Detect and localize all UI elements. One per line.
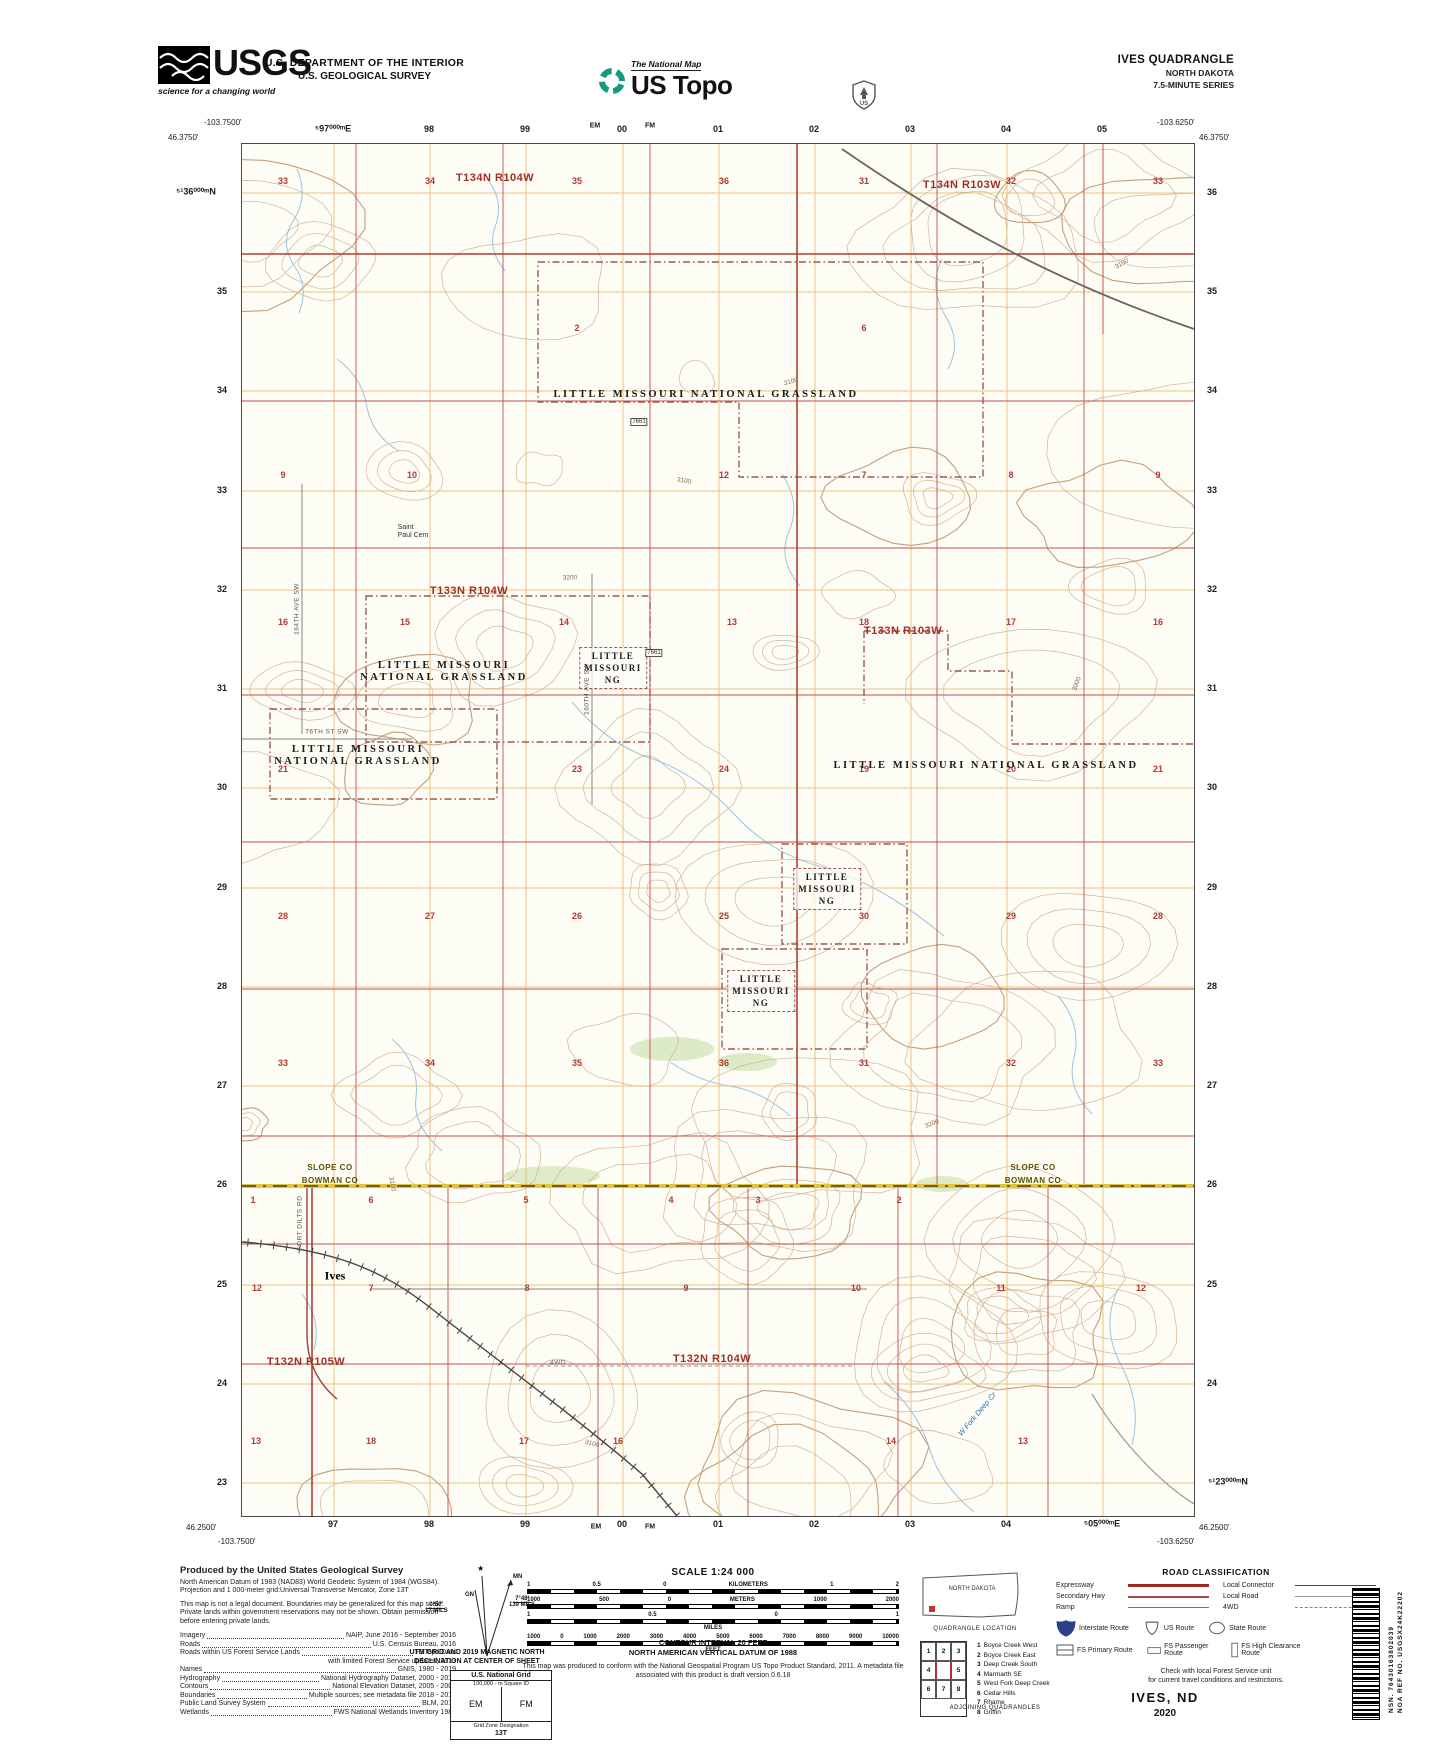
grid-label: 32: [1207, 584, 1217, 594]
scale-bar-graphic: [527, 1589, 899, 1594]
data-credits: ImageryNAIP, June 2016 - September 2016 …: [180, 1632, 456, 1717]
adjoining-quad: 5West Fork Deep Creek: [977, 1679, 1050, 1689]
usgs-tagline: science for a changing world: [158, 86, 275, 96]
datum-notes: North American Datum of 1983 (NAD83) Wor…: [180, 1579, 456, 1596]
road-sample-line: [1128, 1584, 1209, 1587]
adjoining-quad: 4Marmarth SE: [977, 1670, 1050, 1680]
fs-passenger-item: FS Passenger Route: [1147, 1641, 1217, 1659]
grid-label: EM: [590, 123, 601, 130]
grid-label: 33: [1207, 485, 1217, 495]
road-sample-line: [1128, 1596, 1209, 1598]
grid-label: 30: [1207, 782, 1217, 792]
fs-route-number: 7661: [645, 649, 662, 657]
grid-label: 30: [217, 782, 227, 792]
grid-label: 97: [328, 1519, 338, 1529]
interstate-shield-icon: [1056, 1619, 1076, 1637]
ustopo-label: US Topo: [631, 70, 732, 100]
scale-bar: 10.50KILOMETERS12: [527, 1582, 899, 1594]
adjoining-quad: 3Deep Creek South: [977, 1660, 1050, 1670]
usng-zone: 13T: [451, 1730, 551, 1739]
grid-label: 98: [424, 1519, 434, 1529]
credit-row: ImageryNAIP, June 2016 - September 2016: [180, 1632, 456, 1641]
us-route-item: US Route: [1143, 1619, 1194, 1637]
grid-label: 31: [217, 683, 227, 693]
credit-row: Public Land Survey SystemBLM, 2018: [180, 1700, 456, 1709]
location-caption: QUADRANGLE LOCATION: [920, 1626, 1030, 1632]
grid-label: 34: [1207, 385, 1217, 395]
grid-label: 04: [1001, 1519, 1011, 1529]
contour-interval-note: CONTOUR INTERVAL 20 FEETNORTH AMERICAN V…: [527, 1638, 899, 1658]
grid-label: 02: [809, 1519, 819, 1529]
map-area: 3334353631323326910127891615141318171621…: [241, 143, 1195, 1517]
grid-label: 27: [217, 1080, 227, 1090]
ustopo-pinwheel-icon: [597, 66, 627, 96]
dept-line1: U.S. DEPARTMENT OF THE INTERIOR: [252, 57, 477, 69]
scale-bar: 10005000METERS10002000: [527, 1597, 899, 1609]
corner-coord-bottom-right-lat: 46.2500': [1199, 1523, 1229, 1532]
credit-row: ContoursNational Elevation Dataset, 2005…: [180, 1683, 456, 1692]
road-class-row: Secondary Hwy: [1056, 1593, 1209, 1600]
grid-label: 25: [217, 1279, 227, 1289]
grid-label: ⁵05⁰⁰⁰ᵐE: [1084, 1519, 1120, 1530]
adjoining-quad: 1Boyce Creek West: [977, 1641, 1050, 1651]
produced-title: Produced by the United States Geological…: [180, 1567, 456, 1576]
grid-label: 29: [1207, 882, 1217, 892]
grid-label: ⁵¹36⁰⁰⁰ᵐN: [176, 187, 216, 198]
fs-high-clearance-icon: [1231, 1641, 1239, 1659]
state-route-circle-icon: [1208, 1621, 1226, 1635]
grid-label: ⁵¹23⁰⁰⁰ᵐN: [1208, 1477, 1248, 1488]
quad-state: NORTH DAKOTA: [1018, 68, 1234, 78]
grid-label: 04: [1001, 124, 1011, 134]
road-class-row: Expressway: [1056, 1582, 1209, 1589]
fs-route-markers: 76617661: [242, 144, 1194, 1516]
adjoining-caption: ADJOINING QUADRANGLES: [920, 1705, 1070, 1711]
adjoining-quad: 6Cedar Hills: [977, 1689, 1050, 1699]
fs-passenger-icon: [1147, 1646, 1162, 1655]
adjoining-quad: 2Boyce Creek East: [977, 1651, 1050, 1661]
credit-row: NamesGNIS, 1980 - 2019: [180, 1666, 456, 1675]
grid-label: EM: [591, 1524, 602, 1531]
grid-label: 02: [809, 124, 819, 134]
usng-em: EM: [451, 1687, 502, 1721]
grid-north-label: GN: [465, 1592, 474, 1598]
grid-label: 00: [617, 124, 627, 134]
legal-notes: This map is not a legal document. Bounda…: [180, 1601, 456, 1627]
sheet-name: IVES, ND: [1090, 1690, 1240, 1705]
corner-coord-top-right-lon: -103.6250': [1157, 118, 1195, 127]
grid-label: 26: [217, 1179, 227, 1189]
magnetic-north-label: MN: [513, 1574, 522, 1580]
corner-coord-top-left-lon: -103.7500': [204, 118, 242, 127]
road-sample-line: [1295, 1585, 1376, 1586]
usgs-topo-sheet: { "header": { "usgs_word": "USGS", "usgs…: [0, 0, 1445, 1746]
state-route-item: State Route: [1208, 1619, 1266, 1637]
grid-label: 03: [905, 1519, 915, 1529]
gn-offset: 0°57'17 MILS: [425, 1602, 448, 1614]
fs-primary-icon: [1056, 1644, 1074, 1656]
grid-label: 24: [1207, 1378, 1217, 1388]
nsn-reference: NSN. 76430163802039NGA REF NO. USGSX24K2…: [1387, 1591, 1405, 1713]
quadrangle-location: NORTH DAKOTA QUADRANGLE LOCATION: [920, 1570, 1030, 1632]
interstate-route-item: Interstate Route: [1056, 1619, 1129, 1637]
fs-route-number: 7661: [630, 418, 647, 426]
grid-label: 31: [1207, 683, 1217, 693]
corner-coord-top-right-lat: 46.3750': [1199, 133, 1229, 142]
production-notes: Produced by the United States Geological…: [180, 1567, 456, 1717]
true-north-star: ★: [477, 1564, 484, 1573]
department-heading: U.S. DEPARTMENT OF THE INTERIOR U.S. GEO…: [252, 57, 477, 82]
road-class-row: Ramp: [1056, 1604, 1209, 1611]
fs-primary-item: FS Primary Route: [1056, 1641, 1133, 1659]
scale-bar-graphic: [527, 1619, 899, 1624]
grid-label: 28: [217, 981, 227, 991]
us-route-shield-icon: [1143, 1620, 1161, 1636]
grid-label: 29: [217, 882, 227, 892]
corner-coord-top-left-lat: 46.3750': [168, 133, 198, 142]
usgs-wave-icon: [158, 46, 210, 84]
usng-fm: FM: [502, 1687, 552, 1721]
grid-label: FM: [645, 1524, 655, 1531]
grid-label: 33: [217, 485, 227, 495]
scale-bar-graphic: [527, 1604, 899, 1609]
quad-location-marker: [929, 1606, 935, 1612]
quad-title: IVES QUADRANGLE: [1018, 54, 1234, 66]
grid-label: 35: [217, 286, 227, 296]
grid-label: FM: [645, 123, 655, 130]
grid-label: 01: [713, 1519, 723, 1529]
grid-label: 99: [520, 1519, 530, 1529]
ustopo-logo: The National Map US Topo: [597, 54, 732, 99]
grid-label: 35: [1207, 286, 1217, 296]
dept-line2: U.S. GEOLOGICAL SURVEY: [252, 71, 477, 82]
grid-label: 01: [713, 124, 723, 134]
barcode: [1352, 1588, 1380, 1720]
forest-service-note: Check with local Forest Service unitfor …: [1056, 1667, 1376, 1685]
road-classification: ROAD CLASSIFICATION ExpresswaySecondary …: [1056, 1567, 1376, 1685]
grid-label: 36: [1207, 187, 1217, 197]
grid-label: ⁵97⁰⁰⁰ᵐE: [315, 124, 351, 135]
grid-label: 25: [1207, 1279, 1217, 1289]
grid-label: 00: [617, 1519, 627, 1529]
road-classification-title: ROAD CLASSIFICATION: [1056, 1567, 1376, 1577]
sheet-year: 2020: [1090, 1708, 1240, 1719]
road-class-left: ExpresswaySecondary HwyRamp: [1056, 1582, 1209, 1615]
grid-label: 99: [520, 124, 530, 134]
grid-label: 24: [217, 1378, 227, 1388]
grid-label: 32: [217, 584, 227, 594]
quadrangle-title-block: IVES QUADRANGLE NORTH DAKOTA 7.5-MINUTE …: [1018, 54, 1234, 90]
grid-label: 28: [1207, 981, 1217, 991]
quad-series: 7.5-MINUTE SERIES: [1018, 80, 1234, 90]
svg-text:US: US: [860, 101, 868, 107]
usng-zone-label: Grid Zone Designation: [451, 1722, 551, 1730]
grid-label: 05: [1097, 124, 1107, 134]
grid-label: 03: [905, 124, 915, 134]
grid-label: 23: [217, 1477, 227, 1487]
north-dakota-outline-icon: [920, 1570, 1024, 1620]
usng-box: U.S. National Grid 100,000 - m Square ID…: [450, 1670, 552, 1740]
corner-coord-bottom-left-lon: -103.7500': [218, 1537, 256, 1546]
grid-label: 26: [1207, 1179, 1217, 1189]
corner-coord-bottom-left-lat: 46.2500': [186, 1523, 216, 1532]
standard-conformance-note: This map was produced to conform with th…: [507, 1662, 919, 1680]
fs-high-clearance-item: FS High Clearance Route: [1231, 1641, 1309, 1659]
grid-label: 34: [217, 385, 227, 395]
credit-row: WetlandsFWS National Wetlands Inventory …: [180, 1709, 456, 1718]
corner-coord-bottom-right-lon: -103.6250': [1157, 1537, 1195, 1546]
credit-row: HydrographyNational Hydrography Dataset,…: [180, 1675, 456, 1684]
scale-bar: 10.501 MILES: [527, 1612, 899, 1631]
forest-service-shield-icon: US: [851, 80, 877, 110]
state-name: NORTH DAKOTA: [920, 1586, 1024, 1592]
state-outline: NORTH DAKOTA: [920, 1570, 1024, 1620]
grid-label: 27: [1207, 1080, 1217, 1090]
road-sample-line: [1128, 1607, 1209, 1608]
grid-label: 98: [424, 124, 434, 134]
credit-row: BoundariesMultiple sources; see metadata…: [180, 1692, 456, 1701]
scale-title: SCALE 1:24 000: [527, 1567, 899, 1578]
